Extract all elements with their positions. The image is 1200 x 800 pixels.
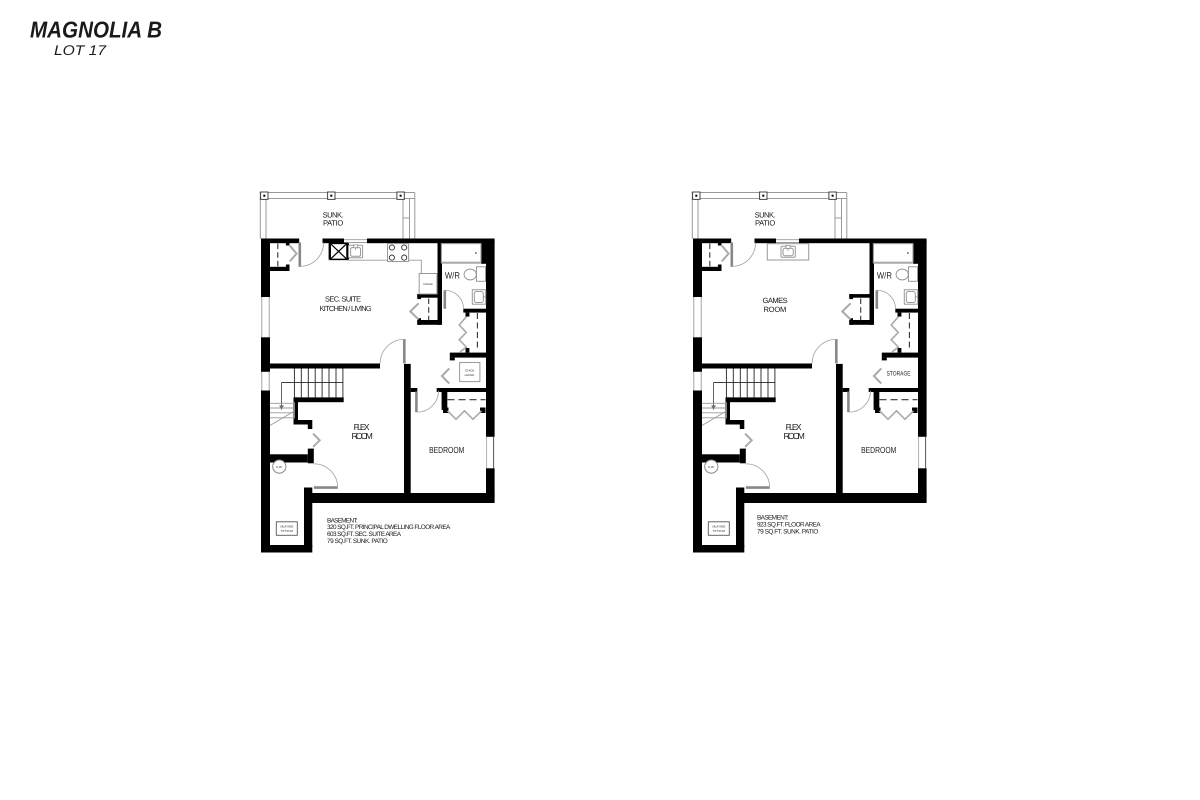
svg-text:LAUND.: LAUND. [465,373,475,377]
svg-text:H.W.: H.W. [708,465,715,469]
svg-text:SEC. SUITE: SEC. SUITE [325,295,361,304]
svg-text:BEDROOM: BEDROOM [429,445,464,455]
svg-text:SYSTEM: SYSTEM [713,529,726,533]
svg-text:SYSTEM: SYSTEM [281,529,294,533]
svg-text:W/R: W/R [877,271,892,281]
svg-text:PATIO: PATIO [755,219,775,228]
svg-text:W/R: W/R [445,271,460,281]
svg-text:ROOM: ROOM [352,431,373,441]
svg-text:MAGNOLIA B: MAGNOLIA B [30,17,162,43]
svg-text:BASEMENT:: BASEMENT: [757,514,789,521]
svg-text:79 SQ.FT. SUNK. PATIO: 79 SQ.FT. SUNK. PATIO [757,529,818,536]
svg-text:PATIO: PATIO [323,219,343,228]
svg-text:ROOM: ROOM [784,431,805,441]
svg-text:FRIDGE: FRIDGE [423,283,433,286]
svg-text:BEDROOM: BEDROOM [861,445,896,455]
svg-text:ROOM: ROOM [763,305,786,314]
svg-text:STORAGE: STORAGE [887,371,911,378]
svg-text:GAMES: GAMES [763,296,788,305]
svg-text:H.W.: H.W. [276,465,283,469]
svg-text:79 SQ.FT. SUNK. PATIO: 79 SQ.FT. SUNK. PATIO [327,538,388,545]
svg-text:KITCHEN / LIVING: KITCHEN / LIVING [320,304,372,313]
svg-text:HEATING: HEATING [280,525,294,529]
svg-text:HEATING: HEATING [712,525,726,529]
svg-text:LOT 17: LOT 17 [54,42,107,58]
